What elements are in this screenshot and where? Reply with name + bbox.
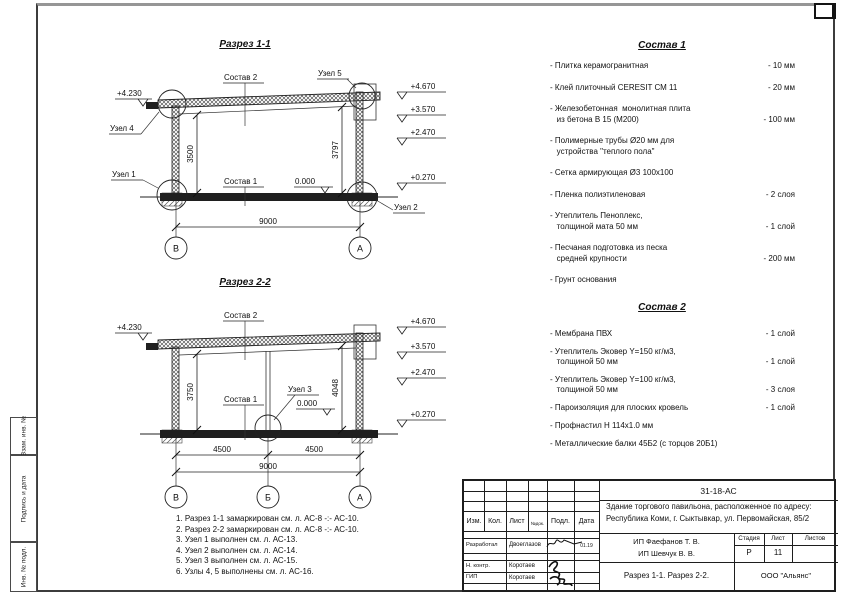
section1-axes: В А [165, 237, 371, 259]
uzel5-label: Узел 5 [318, 69, 342, 78]
dim-4500-left: 4500 [213, 445, 231, 454]
dim-4048: 4048 [331, 379, 340, 397]
roof-end-cap [146, 102, 158, 109]
section2-axes: В Б А [165, 486, 371, 508]
wall-left [172, 347, 179, 430]
client-line2: ИП Шевчук В. В. [599, 549, 734, 558]
row-name: Коротаев [509, 563, 535, 569]
note-line: 2. Разрез 2-2 замаркирован см. л. АС-8 -… [176, 525, 359, 536]
dim-3797: 3797 [331, 141, 340, 159]
sostav1-list: - Плитка керамогранитная- 10 мм - Клей п… [550, 61, 795, 297]
wall-right [356, 333, 363, 430]
elev-0270: +0.270 [411, 410, 436, 419]
elev-0270: +0.270 [411, 173, 436, 182]
roof-slab [158, 333, 380, 349]
uzel3-label: Узел 3 [288, 385, 312, 394]
dim-4500-right: 4500 [305, 445, 323, 454]
section1-drawing: 3500 3797 9000 В А +4.670 +3.570 + [90, 60, 480, 272]
sheet-value: 11 [764, 548, 792, 557]
list-item: - Пленка полиэтиленовая- 2 слоя [550, 190, 795, 201]
elev-3570: +3.570 [411, 342, 436, 351]
sidebar-cell-vzam-label: Взам. инв. № [20, 416, 27, 456]
dim-3750: 3750 [186, 383, 195, 401]
stage-value: Р [734, 548, 764, 557]
elev-3570: +3.570 [411, 105, 436, 114]
note-line: 5. Узел 3 выполнен см. л. АС-15. [176, 556, 359, 567]
title-block: 31-18-АС Здание торгового павильона, рас… [462, 479, 836, 592]
section2-dim-right: 4048 [331, 342, 346, 434]
row-role: Разработал [466, 542, 498, 548]
sheet-label: Лист [764, 535, 792, 542]
list-item: - Мембрана ПВХ- 1 слой [550, 329, 795, 339]
list-item: - Железобетонная монолитная плита из бет… [550, 104, 795, 125]
roof-end-cap [146, 343, 158, 350]
row-name: Двоеглазов [509, 542, 541, 548]
sidebar-cell-inv-label: Инв. № подл. [20, 547, 27, 588]
sostav2-label: Состав 2 [224, 73, 258, 82]
col-header-kol: Кол. [484, 518, 506, 525]
doc-number: 31-18-АС [599, 486, 838, 496]
uzel1-label: Узел 1 [112, 170, 136, 179]
section1-structure [140, 84, 398, 206]
list-item: - Профнастил Н 114x1.0 мм [550, 421, 795, 431]
list-item: - Клей плиточный CERESIT СМ 11- 20 мм [550, 83, 795, 94]
note-line: 3. Узел 1 выполнен см. л. АС-13. [176, 535, 359, 546]
elev-4230: +4.230 [117, 89, 142, 98]
signatures [544, 535, 592, 589]
stage-label: Стадия [734, 535, 764, 542]
sidebar-cell-podpis-label: Подпись и дата [20, 475, 27, 522]
section1-elevation-marks: +4.670 +3.570 +2.470 +0.270 [397, 82, 446, 190]
section2-elevation-marks: +4.670 +3.570 +2.470 +0.270 [397, 317, 446, 427]
section1-dim-right: 3797 [331, 103, 346, 197]
elev-2470: +2.470 [411, 368, 436, 377]
section1-labels: Состав 2 Состав 1 0.000 Узел 5 Узел 4 Уз… [109, 69, 425, 213]
sheets-label: Листов [792, 535, 838, 542]
row-role: Н. контр. [466, 563, 490, 569]
sostav1-label: Состав 1 [224, 177, 258, 186]
wall-right [356, 92, 363, 193]
section2-structure [140, 325, 398, 443]
section1-dim-span: 9000 [172, 201, 364, 237]
section2-dim-span: 4500 4500 9000 [172, 438, 364, 486]
notes-block: 1. Разрез 1-1 замаркирован см. л. АС-8 -… [176, 514, 359, 578]
list-item: - Утеплитель Эковер Y=150 кг/м3, толщино… [550, 347, 795, 367]
sidebar-cell-podpis: Подпись и дата [10, 455, 37, 542]
section2-left-elevation: +4.230 [115, 323, 152, 340]
section2-drawing: 3750 4048 4500 4500 9000 В Б А [90, 300, 480, 512]
col-header-ndok: №док. [528, 521, 547, 526]
signature-razrabotal [547, 540, 582, 547]
col-header-izm: Изм. [464, 518, 484, 525]
format-stamp-box [814, 3, 836, 19]
section1-title: Разрез 1-1 [160, 39, 330, 50]
dim-9000: 9000 [259, 217, 277, 226]
client-line1: ИП Фаефанов Т. В. [599, 537, 734, 546]
project-line2: Республика Коми, г. Сыктывкар, ул. Перво… [606, 514, 809, 523]
roof-slab [158, 92, 380, 108]
uzel4-label: Узел 4 [110, 124, 134, 133]
sostav2-label: Состав 2 [224, 311, 258, 320]
elev-4230: +4.230 [117, 323, 142, 332]
axis-v: В [173, 244, 179, 254]
sidebar-cell-inv: Инв. № подл. [10, 542, 37, 592]
floor-slab [160, 193, 378, 201]
elev-4670: +4.670 [411, 82, 436, 91]
dim-3500: 3500 [186, 145, 195, 163]
sidebar-cell-vzam: Взам. инв. № [10, 417, 37, 455]
sostav1-label: Состав 1 [224, 395, 258, 404]
company-name: ООО "Альянс" [734, 571, 838, 580]
note-line: 4. Узел 2 выполнен см. л. АС-14. [176, 546, 359, 557]
list-item: - Плитка керамогранитная- 10 мм [550, 61, 795, 72]
col-header-list: Лист [506, 518, 528, 525]
list-item: - Полимерные трубы Ø20 мм для устройства… [550, 136, 795, 157]
row-role: ГИП [466, 574, 477, 580]
uzel2-label: Узел 2 [394, 203, 418, 212]
sostav1-title: Состав 1 [597, 40, 727, 51]
note-line: 6. Узлы 4, 5 выполнены см. л. АС-16. [176, 567, 359, 578]
axis-b: Б [265, 493, 271, 503]
sostav2-title: Состав 2 [597, 302, 727, 313]
dim-9000: 9000 [259, 462, 277, 471]
list-item: - Грунт основания [550, 275, 795, 286]
zero-mark: 0.000 [297, 399, 318, 408]
section1-dim-left: 3500 [186, 111, 201, 197]
floor-slab [160, 430, 378, 438]
section2-title: Разрез 2-2 [160, 277, 330, 288]
axis-v: В [173, 493, 179, 503]
list-item: - Утеплитель Эковер Y=100 кг/м3, толщино… [550, 375, 795, 395]
list-item: - Сетка армирующая Ø3 100x100 [550, 168, 795, 179]
list-item: - Пароизоляция для плоских кровель- 1 сл… [550, 403, 795, 413]
drawing-sheet: Взам. инв. № Подпись и дата Инв. № подл.… [0, 0, 841, 595]
elev-2470: +2.470 [411, 128, 436, 137]
note-line: 1. Разрез 1-1 замаркирован см. л. АС-8 -… [176, 514, 359, 525]
col-header-data: Дата [574, 518, 599, 525]
sostav2-list: - Мембрана ПВХ- 1 слой - Утеплитель Эков… [550, 329, 795, 457]
axis-a: А [357, 244, 363, 254]
list-item: - Металлические балки 45Б2 (с торцов 20Б… [550, 439, 795, 449]
section2-dim-left: 3750 [186, 350, 201, 434]
project-line1: Здание торгового павильона, расположенно… [606, 502, 812, 511]
list-item: - Утеплитель Пеноплекс, толщиной мата 50… [550, 211, 795, 232]
row-name: Коротаев [509, 575, 535, 581]
list-item: - Песчаная подготовка из песка средней к… [550, 243, 795, 264]
elev-4670: +4.670 [411, 317, 436, 326]
axis-a: А [357, 493, 363, 503]
drawing-title: Разрез 1-1. Разрез 2-2. [599, 571, 734, 580]
zero-mark: 0.000 [295, 177, 316, 186]
col-header-podp: Подл. [547, 518, 574, 525]
signature-kontr-gip [549, 562, 572, 586]
